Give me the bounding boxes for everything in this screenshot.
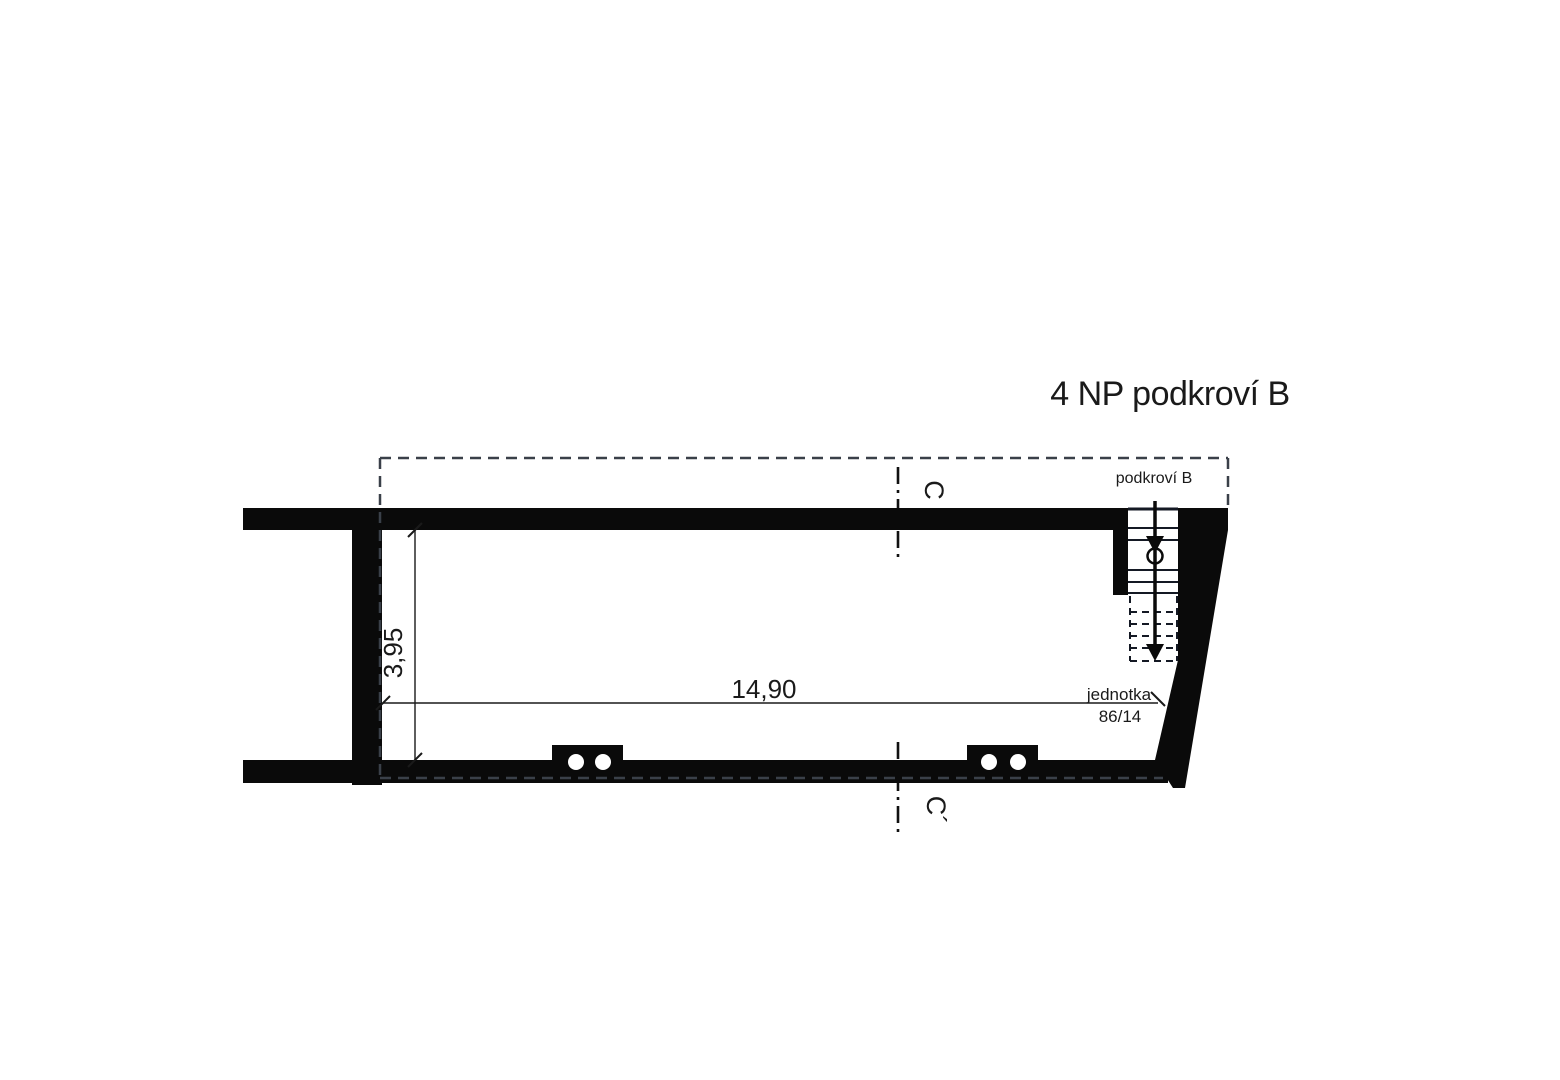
- section-marker-bottom: C´: [921, 796, 951, 825]
- dimension-depth-label: 3,95: [378, 628, 408, 679]
- unit-number: 86/14: [1099, 707, 1142, 726]
- flue-circle: [595, 754, 611, 770]
- flue-circle: [568, 754, 584, 770]
- unit-label: jednotka: [1086, 685, 1152, 704]
- floor-plan-drawing: 4 NP podkroví B podkroví B 14,90 3,95 je…: [0, 0, 1560, 1080]
- dimension-lines: [376, 523, 1165, 767]
- staircase: [1128, 501, 1178, 661]
- flue-circle: [1010, 754, 1026, 770]
- attic-area-label: podkroví B: [1116, 470, 1192, 487]
- page-title: 4 NP podkroví B: [1050, 375, 1289, 413]
- floor-plan-canvas: 4 NP podkroví B podkroví B 14,90 3,95 je…: [0, 0, 1560, 1080]
- dimension-width-label: 14,90: [731, 674, 796, 704]
- right-sloped-wall: [1155, 508, 1228, 788]
- stair-side-wall: [1113, 528, 1128, 595]
- flue-circle: [981, 754, 997, 770]
- unit-boundary-dashed: [380, 458, 1228, 778]
- section-marker-top: C: [919, 480, 949, 500]
